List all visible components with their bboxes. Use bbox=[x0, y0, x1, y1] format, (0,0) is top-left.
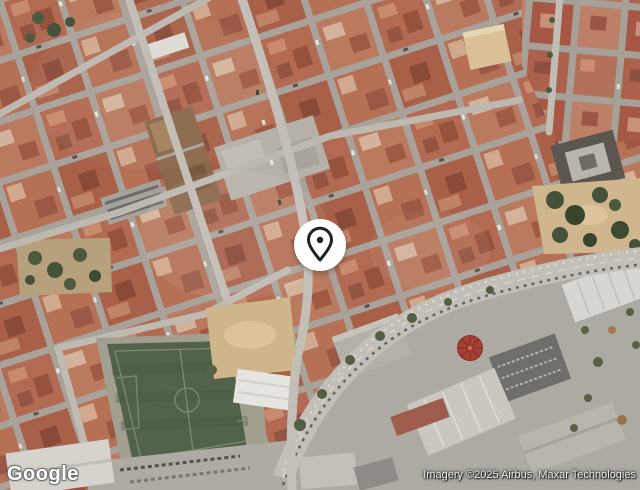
satellite-map-canvas[interactable] bbox=[0, 0, 640, 490]
west-park bbox=[16, 238, 112, 296]
map-container: Google Imagery ©2025 Airbus, Maxar Techn… bbox=[0, 0, 640, 490]
sand-lot bbox=[206, 297, 297, 379]
google-logo[interactable]: Google bbox=[7, 463, 79, 486]
red-round-roof-building bbox=[458, 336, 483, 361]
location-marker[interactable] bbox=[294, 219, 347, 275]
east-park bbox=[532, 178, 640, 254]
imagery-attribution: Imagery ©2025 Airbus, Maxar Technologies bbox=[423, 469, 636, 481]
